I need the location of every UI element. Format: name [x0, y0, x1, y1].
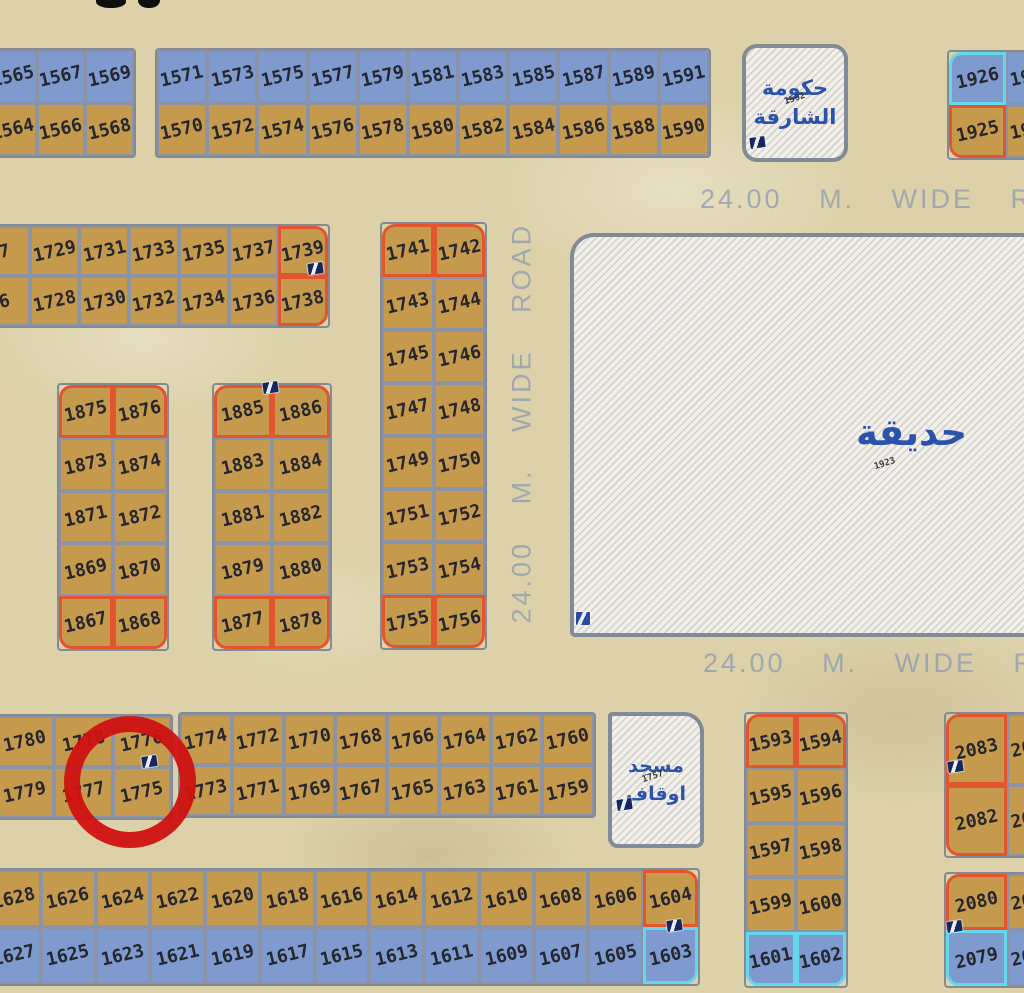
plot-number: 1741 [384, 235, 431, 265]
plot-number: 1597 [748, 835, 795, 865]
plot-number: 1566 [38, 114, 85, 144]
plot-1623[interactable]: 1623 [96, 927, 151, 984]
plot-1567[interactable]: 1567 [37, 50, 86, 103]
plot-1753[interactable]: 1753 [382, 542, 434, 595]
plot-fragment[interactable]: 20 [1007, 874, 1024, 930]
plot-2082[interactable]: 2082 [946, 785, 1007, 856]
plot-1868[interactable]: 1868 [113, 596, 167, 649]
plot-1735[interactable]: 1735 [179, 226, 229, 276]
plot-1926[interactable]: 1926 [949, 52, 1006, 105]
plot-number: 1730 [81, 286, 128, 316]
plot-1576[interactable]: 1576 [308, 103, 358, 156]
plot-1766[interactable]: 1766 [387, 714, 439, 765]
plot-1621[interactable]: 1621 [150, 927, 205, 984]
plot-1595[interactable]: 1595 [746, 768, 796, 822]
plot-number: 1772 [234, 724, 281, 754]
marker-icon [616, 798, 632, 811]
plot-number: 2080 [953, 887, 1000, 917]
plot-1607[interactable]: 1607 [534, 927, 589, 984]
plot-number: 1617 [264, 940, 311, 970]
plot-number: 19 [1008, 119, 1024, 144]
plot-1586[interactable]: 1586 [558, 103, 608, 156]
plot-number: 1749 [384, 447, 431, 477]
plot-number: 1568 [86, 114, 133, 144]
plot-number: 1743 [384, 288, 431, 318]
plot-fragment[interactable]: 19 [1006, 105, 1024, 158]
plot-number: 2079 [953, 943, 1000, 973]
plot-number: 1582 [460, 114, 507, 144]
plot-1738[interactable]: 1738 [278, 276, 328, 326]
plot-number: 1567 [38, 61, 85, 91]
plot-1729[interactable]: 1729 [30, 226, 80, 276]
plot-number: 1564 [0, 114, 36, 144]
plot-number: 1770 [286, 724, 333, 754]
plot-1599[interactable]: 1599 [746, 877, 796, 931]
plot-1749[interactable]: 1749 [382, 436, 434, 489]
plot-1610[interactable]: 1610 [479, 870, 534, 927]
plot-1613[interactable]: 1613 [369, 927, 424, 984]
plot-number: 1590 [660, 114, 707, 144]
plot-number: 1606 [592, 883, 639, 913]
plot-number: 1756 [436, 606, 483, 636]
plot-number: 1596 [798, 780, 845, 810]
plot-number: 1755 [384, 606, 431, 636]
plot-1877[interactable]: 1877 [214, 596, 272, 649]
plot-1626[interactable]: 1626 [41, 870, 96, 927]
plot-1628[interactable]: 1628 [0, 870, 41, 927]
plot-number: 1595 [748, 780, 795, 810]
plot-number: 1608 [538, 883, 585, 913]
plot-1734[interactable]: 1734 [179, 276, 229, 326]
plot-1606[interactable]: 1606 [588, 870, 643, 927]
block-1877-1886: 1885188618831884188118821879188018771878 [212, 383, 332, 651]
plot-1728[interactable]: 1728 [30, 276, 80, 326]
plot-number: 1880 [278, 555, 325, 585]
plot-1587[interactable]: 1587 [558, 50, 608, 103]
plot-1772[interactable]: 1772 [232, 714, 284, 765]
plot-1603[interactable]: 1603 [643, 927, 698, 984]
plot-number: 1761 [493, 775, 540, 805]
plot-1881[interactable]: 1881 [214, 491, 272, 544]
plot-number: 1746 [436, 341, 483, 371]
plot-1577[interactable]: 1577 [308, 50, 358, 103]
plot-1755[interactable]: 1755 [382, 595, 434, 648]
plot-number: 1594 [798, 726, 845, 756]
plot-number: 1611 [428, 940, 475, 970]
plot-1584[interactable]: 1584 [508, 103, 558, 156]
plot-1616[interactable]: 1616 [315, 870, 370, 927]
plot-1879[interactable]: 1879 [214, 543, 272, 596]
plot-number: 1577 [309, 61, 356, 91]
plot-number: 1769 [286, 775, 333, 805]
plot-1876[interactable]: 1876 [113, 385, 167, 438]
block-1741-1756: 1741174217431744174517461747174817491750… [380, 222, 487, 650]
plot-1609[interactable]: 1609 [479, 927, 534, 984]
plot-1564[interactable]: 1564 [0, 103, 37, 156]
plot-number: 1601 [748, 944, 795, 974]
plot-number: 1882 [278, 502, 325, 532]
plot-1591[interactable]: 1591 [659, 50, 709, 103]
plot-1763[interactable]: 1763 [439, 765, 491, 816]
plot-number: 1586 [560, 114, 607, 144]
plot-1925[interactable]: 1925 [949, 105, 1006, 158]
plot-1880[interactable]: 1880 [272, 543, 330, 596]
plot-1882[interactable]: 1882 [272, 491, 330, 544]
plot-1869[interactable]: 1869 [59, 543, 113, 596]
plot-1580[interactable]: 1580 [408, 103, 458, 156]
plot-number: 1602 [798, 944, 845, 974]
plot-number: 1883 [220, 449, 267, 479]
plot-number: 1570 [159, 114, 206, 144]
plot-number: 1877 [220, 607, 267, 637]
plot-number: 1876 [117, 396, 164, 426]
area-label-line: حديقة [856, 413, 967, 453]
plot-1605[interactable]: 1605 [588, 927, 643, 984]
plot-1873[interactable]: 1873 [59, 438, 113, 491]
plot-1573[interactable]: 1573 [207, 50, 257, 103]
plot-2083[interactable]: 2083 [946, 714, 1007, 785]
cropped-title-fragment [138, 0, 160, 8]
plot-1622[interactable]: 1622 [150, 870, 205, 927]
plot-fragment[interactable]: 20 [1007, 785, 1024, 856]
plot-number: 1624 [99, 883, 146, 913]
plot-1746[interactable]: 1746 [434, 330, 486, 383]
plot-1765[interactable]: 1765 [387, 765, 439, 816]
plot-number: 1736 [230, 286, 277, 316]
plot-number: 1885 [220, 396, 267, 426]
plot-number: 1588 [610, 114, 657, 144]
plot-number: 1752 [436, 500, 483, 530]
plot-1566[interactable]: 1566 [37, 103, 86, 156]
plot-number: 1598 [798, 835, 845, 865]
plot-1768[interactable]: 1768 [335, 714, 387, 765]
plot-number: 1623 [99, 940, 146, 970]
plot-fragment[interactable]: 6 [0, 276, 30, 326]
plot-number: 20 [1009, 737, 1024, 762]
plot-number: 1925 [954, 116, 1001, 146]
plot-1604[interactable]: 1604 [643, 870, 698, 927]
plot-number: 1578 [359, 114, 406, 144]
plot-1884[interactable]: 1884 [272, 438, 330, 491]
plot-1874[interactable]: 1874 [113, 438, 167, 491]
plot-number: 1764 [441, 724, 488, 754]
plot-number: 1867 [63, 607, 110, 637]
plot-1747[interactable]: 1747 [382, 383, 434, 436]
plot-map: 1565156715691564156615681571157315751577… [0, 0, 1024, 993]
plot-1570[interactable]: 1570 [157, 103, 207, 156]
plot-number: 1733 [131, 236, 178, 266]
plot-number: 1780 [2, 726, 49, 756]
plot-number: 1886 [278, 396, 325, 426]
block-1603-1628: 1628162616241622162016181616161416121610… [0, 868, 700, 986]
plot-1761[interactable]: 1761 [491, 765, 543, 816]
plot-number: 1615 [319, 940, 366, 970]
plot-number: 2082 [953, 805, 1000, 835]
plot-1767[interactable]: 1767 [335, 765, 387, 816]
plot-1578[interactable]: 1578 [358, 103, 408, 156]
plot-number: 1779 [2, 777, 49, 807]
plot-1871[interactable]: 1871 [59, 491, 113, 544]
plot-1569[interactable]: 1569 [85, 50, 134, 103]
plot-number: 20 [1009, 808, 1024, 833]
plot-1751[interactable]: 1751 [382, 489, 434, 542]
plot-1742[interactable]: 1742 [434, 224, 486, 277]
plot-1886[interactable]: 1886 [272, 385, 330, 438]
plot-number: 1599 [748, 889, 795, 919]
plot-1588[interactable]: 1588 [609, 103, 659, 156]
plot-1602[interactable]: 1602 [796, 932, 846, 986]
plot-number: 1610 [483, 883, 530, 913]
plot-number: 1612 [428, 883, 475, 913]
plot-number: 1616 [319, 883, 366, 913]
plot-number: 1603 [647, 940, 694, 970]
area-label-line: الشارقة [754, 104, 837, 131]
plot-1780[interactable]: 1780 [0, 716, 54, 767]
plot-1752[interactable]: 1752 [434, 489, 486, 542]
plot-1770[interactable]: 1770 [284, 714, 336, 765]
plot-1597[interactable]: 1597 [746, 823, 796, 877]
plot-fragment[interactable]: 20 [1007, 930, 1024, 986]
plot-1760[interactable]: 1760 [542, 714, 594, 765]
plot-1736[interactable]: 1736 [229, 276, 279, 326]
plot-number: 1614 [373, 883, 420, 913]
marker-icon [666, 919, 682, 932]
plot-1624[interactable]: 1624 [96, 870, 151, 927]
plot-number: 1575 [259, 61, 306, 91]
plot-number: 1600 [798, 889, 845, 919]
plot-1582[interactable]: 1582 [458, 103, 508, 156]
plot-number: 1621 [154, 940, 201, 970]
plot-1614[interactable]: 1614 [369, 870, 424, 927]
plot-number: 19 [1008, 66, 1024, 91]
plot-number: 1728 [31, 286, 78, 316]
plot-1574[interactable]: 1574 [257, 103, 307, 156]
plot-number: 1729 [31, 236, 78, 266]
plot-1572[interactable]: 1572 [207, 103, 257, 156]
plot-number: 1762 [493, 724, 540, 754]
plot-1583[interactable]: 1583 [458, 50, 508, 103]
plot-number: 20 [1009, 889, 1024, 914]
plot-1883[interactable]: 1883 [214, 438, 272, 491]
plot-number: 1731 [81, 236, 128, 266]
plot-1867[interactable]: 1867 [59, 596, 113, 649]
plot-number: 1576 [309, 114, 356, 144]
plot-1620[interactable]: 1620 [205, 870, 260, 927]
plot-1754[interactable]: 1754 [434, 542, 486, 595]
plot-1590[interactable]: 1590 [659, 103, 709, 156]
plot-1872[interactable]: 1872 [113, 491, 167, 544]
plot-number: 1745 [384, 341, 431, 371]
plot-number: 1622 [154, 883, 201, 913]
plot-number: 1744 [436, 288, 483, 318]
plot-number: 1737 [230, 236, 277, 266]
plot-1745[interactable]: 1745 [382, 330, 434, 383]
plot-number: 1753 [384, 553, 431, 583]
plot-number: 1868 [117, 607, 164, 637]
plot-1743[interactable]: 1743 [382, 277, 434, 330]
plot-number: 7 [0, 240, 12, 263]
block-2082-2083: 208320208220 [944, 712, 1024, 858]
plot-1769[interactable]: 1769 [284, 765, 336, 816]
plot-number: 20 [1009, 945, 1024, 970]
plot-number: 1591 [660, 61, 707, 91]
plot-number: 1751 [384, 500, 431, 530]
plot-1731[interactable]: 1731 [79, 226, 129, 276]
marker-icon [947, 760, 963, 773]
plot-number: 1881 [220, 502, 267, 532]
plot-number: 1585 [510, 61, 557, 91]
marker-icon [307, 262, 323, 275]
plot-1730[interactable]: 1730 [79, 276, 129, 326]
plot-1617[interactable]: 1617 [260, 927, 315, 984]
plot-1600[interactable]: 1600 [796, 877, 846, 931]
park-parcel[interactable]: حديقة1923 [570, 233, 1024, 637]
plot-number: 1584 [510, 114, 557, 144]
plot-number: 1626 [45, 883, 92, 913]
plot-2079[interactable]: 2079 [946, 930, 1007, 986]
plot-number: 1760 [545, 724, 592, 754]
plot-1612[interactable]: 1612 [424, 870, 479, 927]
plot-1762[interactable]: 1762 [491, 714, 543, 765]
plot-1571[interactable]: 1571 [157, 50, 207, 103]
plot-number: 1618 [264, 883, 311, 913]
plot-1611[interactable]: 1611 [424, 927, 479, 984]
plot-1589[interactable]: 1589 [609, 50, 659, 103]
plot-1741[interactable]: 1741 [382, 224, 434, 277]
plot-number: 1620 [209, 883, 256, 913]
plot-number: 1565 [0, 61, 36, 91]
plot-1601[interactable]: 1601 [746, 932, 796, 986]
plot-1878[interactable]: 1878 [272, 596, 330, 649]
road-label: 24.00 M. WIDE ROAD [700, 184, 1024, 215]
plot-1750[interactable]: 1750 [434, 436, 486, 489]
plot-number: 1875 [63, 396, 110, 426]
plot-fragment[interactable]: 7 [0, 226, 30, 276]
plot-number: 1732 [131, 286, 178, 316]
plot-number: 1765 [389, 775, 436, 805]
plot-number: 1878 [278, 607, 325, 637]
plot-1585[interactable]: 1585 [508, 50, 558, 103]
plot-number: 1589 [610, 61, 657, 91]
plot-number: 1748 [436, 394, 483, 424]
plot-1744[interactable]: 1744 [434, 277, 486, 330]
plot-1593[interactable]: 1593 [746, 714, 796, 768]
cropped-title-fragment [96, 0, 126, 8]
plot-number: 1767 [338, 775, 385, 805]
plot-number: 1572 [209, 114, 256, 144]
plot-number: 1628 [0, 883, 37, 913]
plot-number: 1871 [63, 502, 110, 532]
plot-1759[interactable]: 1759 [542, 765, 594, 816]
mosque-parcel[interactable]: مسجداوقاف1757 [608, 712, 704, 848]
plot-number: 1766 [389, 724, 436, 754]
plot-number: 1604 [647, 883, 694, 913]
plot-number: 1593 [748, 726, 795, 756]
plot-1575[interactable]: 1575 [257, 50, 307, 103]
plot-fragment[interactable]: 19 [1006, 52, 1024, 105]
plot-number: 1579 [359, 61, 406, 91]
plot-1625[interactable]: 1625 [41, 927, 96, 984]
plot-number: 1738 [280, 286, 327, 316]
plot-1608[interactable]: 1608 [534, 870, 589, 927]
plot-1565[interactable]: 1565 [0, 50, 37, 103]
marker-icon [576, 612, 590, 625]
plot-number: 1884 [278, 449, 325, 479]
marker-icon [946, 920, 962, 933]
plot-number: 1574 [259, 114, 306, 144]
plot-number: 1571 [159, 61, 206, 91]
plot-number: 1627 [0, 940, 37, 970]
plot-number: 1750 [436, 447, 483, 477]
plot-1596[interactable]: 1596 [796, 768, 846, 822]
plot-1771[interactable]: 1771 [232, 765, 284, 816]
plot-number: 1926 [954, 63, 1001, 93]
block-1564-1569: 156515671569156415661568 [0, 48, 136, 158]
plot-number: 1742 [436, 235, 483, 265]
plot-number: 1580 [410, 114, 457, 144]
plot-1748[interactable]: 1748 [434, 383, 486, 436]
block-1593-1602: 1593159415951596159715981599160016011602 [744, 712, 848, 988]
plot-number: 1771 [234, 775, 281, 805]
plot-fragment[interactable]: 20 [1007, 714, 1024, 785]
block-1759-1774: 1774177217701768176617641762176017731771… [178, 712, 596, 818]
road-label: 24.00 M. WIDE ROAD [703, 648, 1024, 679]
plot-number: 6 [0, 290, 12, 313]
area-small-number: 1923 [873, 456, 897, 472]
plot-1579[interactable]: 1579 [358, 50, 408, 103]
plot-number: 1768 [338, 724, 385, 754]
plot-number: 1581 [410, 61, 457, 91]
block-1570-1591: 1571157315751577157915811583158515871589… [155, 48, 711, 158]
marker-icon [262, 381, 278, 394]
plot-1598[interactable]: 1598 [796, 823, 846, 877]
plot-1779[interactable]: 1779 [0, 767, 54, 818]
plot-1875[interactable]: 1875 [59, 385, 113, 438]
plot-1581[interactable]: 1581 [408, 50, 458, 103]
plot-number: 1609 [483, 940, 530, 970]
plot-1733[interactable]: 1733 [129, 226, 179, 276]
plot-1870[interactable]: 1870 [113, 543, 167, 596]
plot-number: 1587 [560, 61, 607, 91]
plot-1618[interactable]: 1618 [260, 870, 315, 927]
plot-1756[interactable]: 1756 [434, 595, 486, 648]
block-1867-1876: 1875187618731874187118721869187018671868 [57, 383, 169, 651]
plot-number: 1754 [436, 553, 483, 583]
plot-number: 1759 [545, 775, 592, 805]
plot-number: 1870 [117, 555, 164, 585]
plot-1737[interactable]: 1737 [229, 226, 279, 276]
plot-1619[interactable]: 1619 [205, 927, 260, 984]
plot-number: 1569 [86, 61, 133, 91]
plot-number: 1607 [538, 940, 585, 970]
plot-1568[interactable]: 1568 [85, 103, 134, 156]
plot-1615[interactable]: 1615 [315, 927, 370, 984]
plot-1594[interactable]: 1594 [796, 714, 846, 768]
marker-icon [749, 136, 765, 149]
plot-1627[interactable]: 1627 [0, 927, 41, 984]
plot-number: 1763 [441, 775, 488, 805]
plot-number: 1735 [180, 236, 227, 266]
plot-1732[interactable]: 1732 [129, 276, 179, 326]
area-label: حديقة [856, 413, 967, 453]
plot-number: 1613 [373, 940, 420, 970]
plot-number: 1619 [209, 940, 256, 970]
plot-number: 1625 [45, 940, 92, 970]
plot-1764[interactable]: 1764 [439, 714, 491, 765]
plot-number: 1869 [63, 555, 110, 585]
road-label: 24.00 M. WIDE ROAD [507, 232, 538, 624]
plot-number: 1774 [182, 724, 229, 754]
